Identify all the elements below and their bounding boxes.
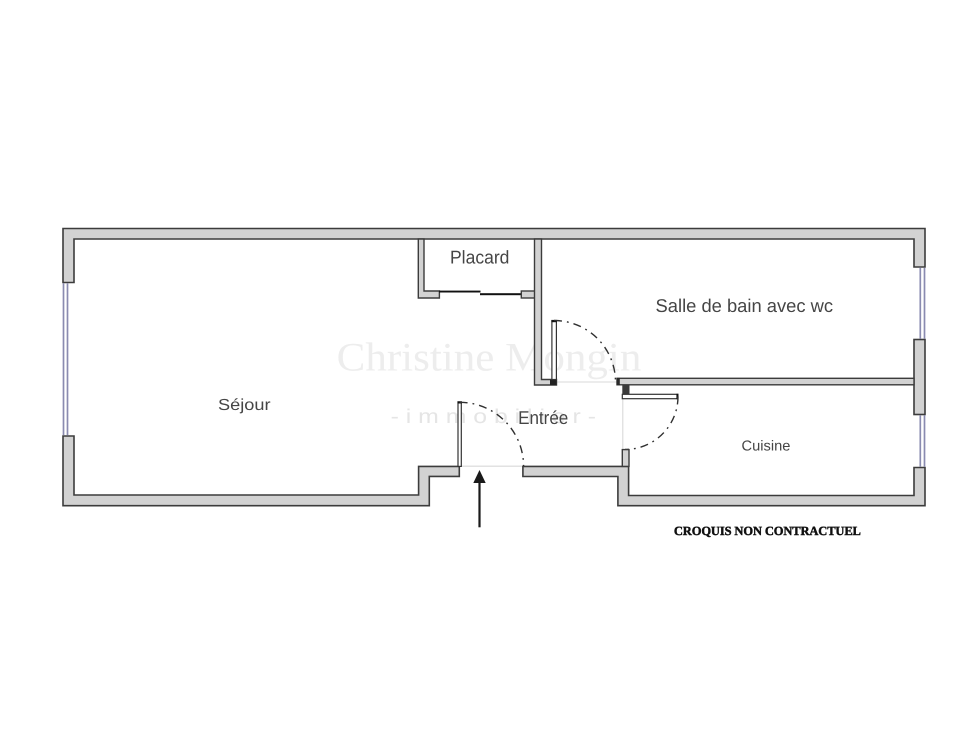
svg-text:Cuisine: Cuisine xyxy=(742,439,791,455)
svg-text:Placard: Placard xyxy=(450,247,509,268)
svg-text:CROQUIS NON CONTRACTUEL: CROQUIS NON CONTRACTUEL xyxy=(674,524,861,538)
svg-text:Séjour: Séjour xyxy=(218,397,271,414)
svg-text:Entrée: Entrée xyxy=(518,407,568,428)
svg-text:Salle de bain avec wc: Salle de bain avec wc xyxy=(656,295,834,316)
svg-text:Christine Mongin: Christine Mongin xyxy=(337,334,642,379)
